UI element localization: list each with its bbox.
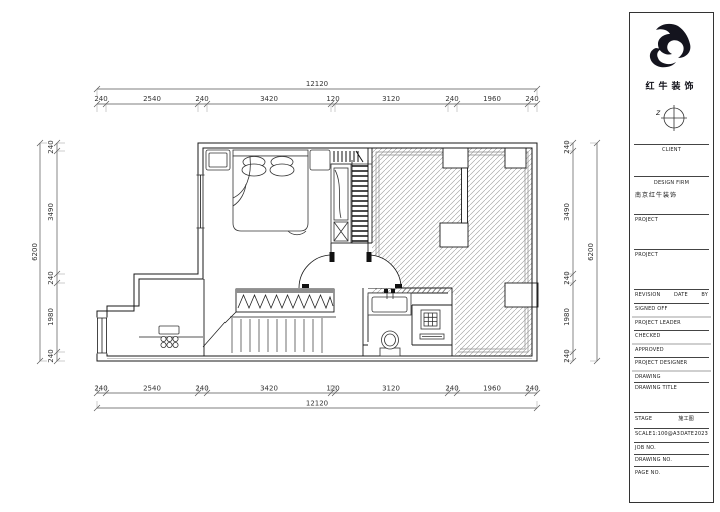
- bull-swoosh-icon: [656, 24, 690, 58]
- checked-label: CHECKED: [635, 333, 708, 339]
- svg-text:240: 240: [94, 385, 107, 393]
- drawing-no-label: DRAWING NO.: [635, 457, 708, 463]
- svg-text:240: 240: [47, 140, 55, 153]
- north-compass-icon: z: [648, 101, 696, 139]
- svg-text:1980: 1980: [47, 308, 55, 326]
- svg-text:3420: 3420: [260, 95, 278, 103]
- svg-text:240: 240: [47, 349, 55, 362]
- dimension-left-labels: 6200 240 3490 240 1980 240: [31, 140, 55, 362]
- svg-text:1960: 1960: [483, 385, 501, 393]
- project-designer-label: PROJECT DESIGNER: [635, 360, 708, 366]
- svg-text:240: 240: [445, 95, 458, 103]
- door-bedroom: [299, 252, 335, 288]
- page-no-label: PAGE NO.: [635, 470, 708, 476]
- stage-row: STAGE 施工图: [635, 416, 708, 422]
- ladder: [352, 160, 368, 243]
- svg-text:240: 240: [525, 95, 538, 103]
- svg-text:120: 120: [326, 95, 339, 103]
- drawing-sheet: 12120 240 2540 240 3420 120 3120 240 196…: [0, 0, 720, 512]
- project2-label: PROJECT: [635, 252, 708, 258]
- svg-text:3490: 3490: [47, 203, 55, 221]
- dim-total-right: 6200: [587, 243, 595, 261]
- svg-text:3120: 3120: [382, 385, 400, 393]
- svg-text:240: 240: [195, 385, 208, 393]
- dimension-left: [37, 140, 65, 364]
- bathroom: [368, 289, 444, 356]
- approved-label: APPROVED: [635, 347, 708, 353]
- date2-label: DATE: [680, 431, 694, 437]
- client-label: CLIENT: [635, 147, 708, 153]
- svg-text:240: 240: [195, 95, 208, 103]
- stool: [167, 342, 172, 347]
- revision-row: REVISION DATE BY: [635, 292, 708, 298]
- radiator-cabinet: [225, 289, 336, 323]
- dining-table: [159, 326, 179, 348]
- svg-text:240: 240: [563, 140, 571, 153]
- stool: [161, 342, 166, 347]
- beam: [462, 168, 468, 223]
- clothes-rail: [334, 151, 363, 162]
- title-block: 红牛装饰 z CLIENT DESIGN FIRM 南京红牛装饰 PROJECT…: [629, 12, 714, 503]
- company-logo: [630, 19, 713, 81]
- scale-value: 1:100@A3: [652, 431, 680, 437]
- revision-label: REVISION: [635, 292, 660, 298]
- svg-text:240: 240: [525, 385, 538, 393]
- date-label: DATE: [674, 292, 688, 298]
- svg-text:1960: 1960: [483, 95, 501, 103]
- pillar: [443, 148, 468, 168]
- floor-plan-canvas: 12120 240 2540 240 3420 120 3120 240 196…: [0, 0, 626, 512]
- scale-row: SCALE 1:100@A3 DATE 2023: [635, 431, 708, 437]
- drawing-title-label: DRAWING TITLE: [635, 385, 708, 391]
- window-bedroom-left: [197, 175, 205, 229]
- svg-text:240: 240: [94, 95, 107, 103]
- svg-text:240: 240: [563, 349, 571, 362]
- sink-basin: [372, 297, 407, 312]
- svg-text:3420: 3420: [260, 385, 278, 393]
- scale-label: SCALE: [635, 431, 652, 437]
- svg-text:3490: 3490: [563, 203, 571, 221]
- pillar: [505, 148, 526, 168]
- dim-total-left: 6200: [31, 243, 39, 261]
- stool: [167, 336, 172, 341]
- bed: [233, 150, 308, 235]
- pillow: [242, 164, 266, 176]
- svg-text:1980: 1980: [563, 308, 571, 326]
- signed-off-label: SIGNED OFF: [635, 306, 708, 312]
- pillar: [505, 283, 538, 307]
- stairs: [232, 318, 322, 353]
- stage-value: 施工图: [678, 416, 694, 422]
- nightstand-right: [310, 150, 330, 170]
- faucet: [391, 289, 395, 293]
- dimension-top-labels: 12120 240 2540 240 3420 120 3120 240 196…: [94, 80, 538, 103]
- dim-total-top: 12120: [306, 80, 328, 88]
- date-value: 2023: [694, 431, 708, 437]
- stage-label: STAGE: [635, 416, 652, 422]
- drawing-label: DRAWING: [635, 374, 708, 380]
- pillar: [440, 223, 468, 247]
- pillow: [270, 164, 294, 176]
- window-lower-left: [97, 318, 108, 354]
- dim-total-bottom: 12120: [306, 400, 328, 408]
- project1-label: PROJECT: [635, 217, 708, 223]
- job-no-label: JOB NO.: [635, 445, 708, 451]
- svg-text:3120: 3120: [382, 95, 400, 103]
- svg-text:2540: 2540: [143, 385, 161, 393]
- headboard: [233, 150, 308, 156]
- svg-text:240: 240: [563, 271, 571, 284]
- stool: [173, 336, 178, 341]
- svg-text:120: 120: [326, 385, 339, 393]
- dimension-bottom-labels: 12120 240 2540 240 3420 120 3120 240 196…: [94, 385, 538, 408]
- project-leader-label: PROJECT LEADER: [635, 320, 708, 326]
- compass-label: z: [655, 108, 661, 117]
- svg-text:240: 240: [445, 385, 458, 393]
- by-label: BY: [701, 292, 708, 298]
- dimension-right-labels: 6200 240 3490 240 1980 240: [563, 140, 595, 362]
- svg-text:240: 240: [47, 271, 55, 284]
- stool: [161, 336, 166, 341]
- svg-text:2540: 2540: [143, 95, 161, 103]
- stool: [173, 342, 178, 347]
- faucet: [384, 289, 388, 293]
- company-name: 红牛装饰: [630, 79, 713, 92]
- design-firm-label: DESIGN FIRM: [635, 180, 708, 186]
- design-firm-value: 南京红牛装饰: [635, 193, 708, 199]
